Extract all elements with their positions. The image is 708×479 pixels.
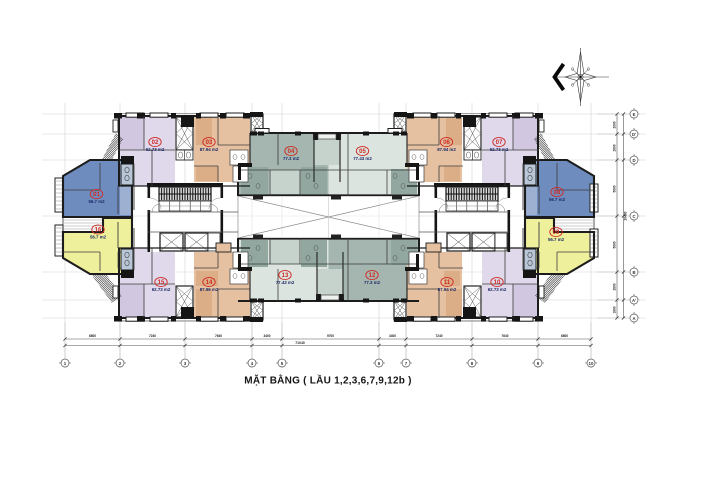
svg-text:08: 08 [554,190,561,196]
svg-text:06: 06 [443,140,450,146]
svg-text:7640: 7640 [215,334,222,338]
svg-text:56.7 m2: 56.7 m2 [90,235,107,240]
svg-text:87.94 m2: 87.94 m2 [438,287,457,292]
svg-text:5600: 5600 [613,185,617,192]
svg-text:77.3 m2: 77.3 m2 [364,280,381,285]
svg-text:56.7 m2: 56.7 m2 [88,199,105,204]
svg-text:87.94 m2: 87.94 m2 [437,147,456,152]
svg-text:03: 03 [206,140,213,146]
svg-text:62.73 m2: 62.73 m2 [146,147,165,152]
svg-text:02: 02 [152,140,159,146]
svg-text:87.94 m2: 87.94 m2 [200,147,219,152]
svg-text:2600: 2600 [613,144,617,151]
svg-text:12: 12 [369,273,376,279]
svg-text:2000: 2000 [613,121,617,128]
svg-text:D: D [632,158,635,163]
svg-text:56.7 m2: 56.7 m2 [549,197,566,202]
svg-text:3400: 3400 [263,334,270,338]
svg-text:2800: 2800 [613,283,617,290]
svg-text:D': D' [632,132,636,137]
svg-text:1800: 1800 [613,306,617,313]
svg-text:15: 15 [158,280,165,286]
svg-text:62.73 m2: 62.73 m2 [152,287,171,292]
svg-text:04: 04 [288,149,295,155]
svg-text:3400: 3400 [389,334,396,338]
svg-text:62.73 m2: 62.73 m2 [490,147,509,152]
svg-text:16: 16 [95,228,102,234]
svg-text:77.3 m2: 77.3 m2 [283,156,300,161]
svg-text:71040: 71040 [295,341,305,345]
svg-text:13: 13 [282,273,289,279]
svg-text:E: E [633,112,636,117]
svg-text:01: 01 [93,192,100,198]
svg-text:MẶT BẰNG ( LẦU 1,2,3,6,7,9,12b: MẶT BẰNG ( LẦU 1,2,3,6,7,9,12b ) [244,374,411,387]
svg-text:B: B [632,270,635,275]
svg-text:87.96 m2: 87.96 m2 [200,287,219,292]
svg-text:7240: 7240 [435,334,442,338]
svg-text:14: 14 [206,280,213,286]
svg-text:09: 09 [553,230,560,236]
svg-text:11: 11 [444,280,451,286]
svg-text:77.43 m2: 77.43 m2 [276,280,295,285]
svg-text:77.43 m2: 77.43 m2 [353,156,372,161]
svg-text:10: 10 [589,361,594,366]
svg-text:5600: 5600 [613,241,617,248]
svg-text:56.7 m2: 56.7 m2 [548,237,565,242]
svg-text:A: A [632,316,635,321]
svg-text:9700: 9700 [327,334,334,338]
svg-text:6800: 6800 [561,334,568,338]
svg-text:7640: 7640 [501,334,508,338]
svg-text:7240: 7240 [149,334,156,338]
svg-text:C: C [632,214,635,219]
svg-text:20400: 20400 [624,211,628,220]
svg-text:10: 10 [494,280,501,286]
svg-text:05: 05 [359,149,366,155]
svg-text:07: 07 [496,140,503,146]
svg-text:A': A' [632,298,636,303]
svg-text:62.73 m2: 62.73 m2 [488,287,507,292]
svg-text:6800: 6800 [89,334,96,338]
